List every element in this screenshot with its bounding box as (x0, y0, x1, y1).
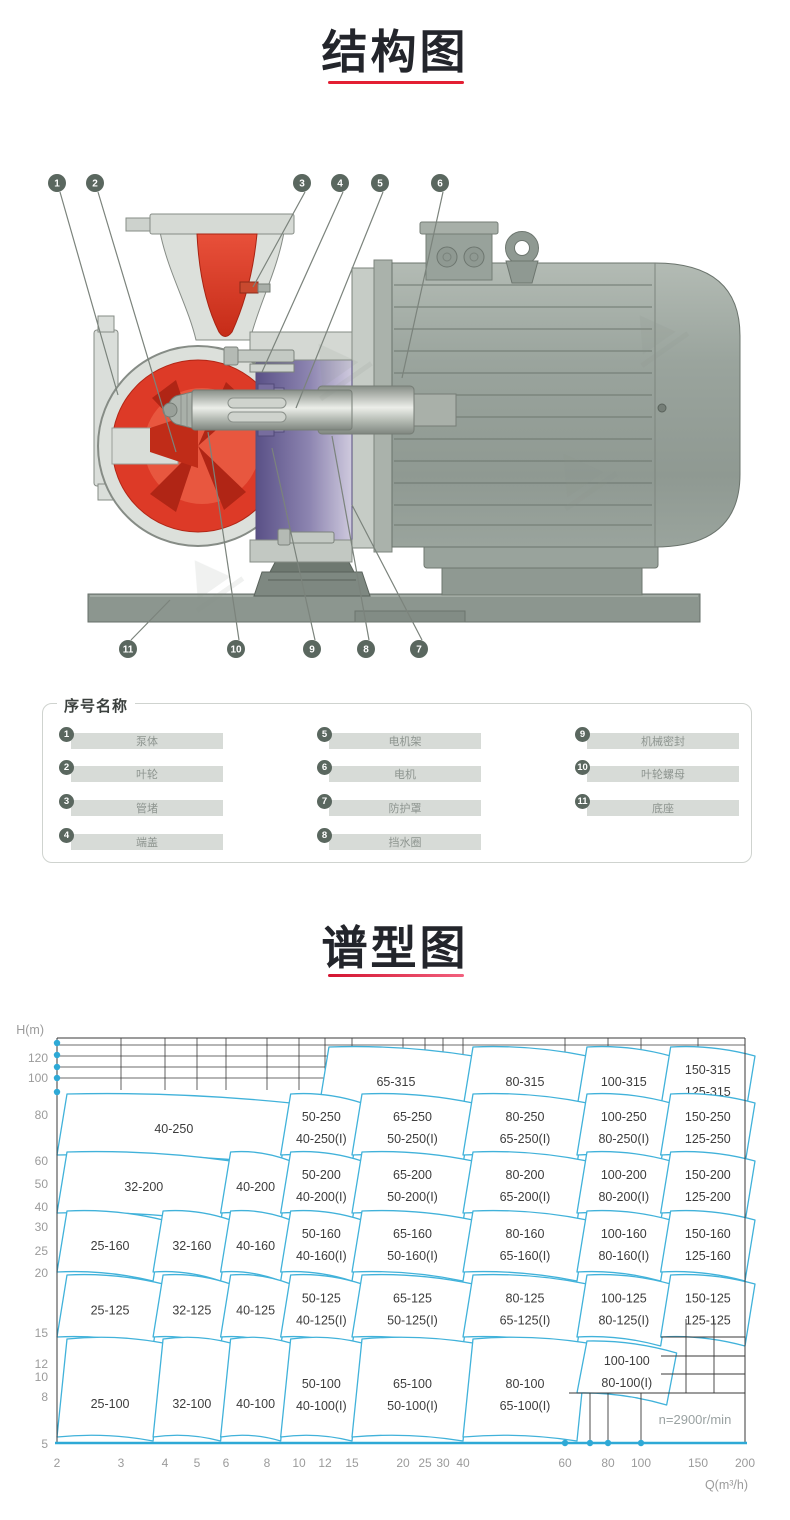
y-tick-label: 8 (41, 1390, 48, 1404)
chart-region-label: 65-125(I) (500, 1314, 551, 1328)
legend-item-number: 6 (317, 760, 332, 775)
callout-number: 10 (230, 645, 242, 656)
terminal-box (420, 222, 498, 280)
y-tick-label: 120 (28, 1051, 48, 1065)
chart-region-label: 65-160(I) (500, 1249, 551, 1263)
page: 结构图 谱型图 (0, 0, 790, 1520)
chart-region-label: 50-200 (302, 1168, 341, 1182)
chart-region-label: 32-100 (172, 1397, 211, 1411)
chart-region-label: 65-160 (393, 1227, 432, 1241)
chart-region-label: 80-125(I) (598, 1314, 649, 1328)
chart-region-label: 50-160(I) (387, 1249, 438, 1263)
x-axis-title: Q(m³/h) (705, 1478, 748, 1492)
chart-region-label: 100-315 (601, 1075, 647, 1089)
chart-region-label: 100-160 (601, 1227, 647, 1241)
chart-region-label: 125-250 (685, 1132, 731, 1146)
legend-item-number: 2 (59, 760, 74, 775)
legend-item-number: 1 (59, 727, 74, 742)
chart-region-label: 25-100 (91, 1397, 130, 1411)
chart-region-label: 40-125 (236, 1304, 275, 1318)
legend-item-label: 管堵 (71, 800, 223, 816)
x-tick-label: 60 (558, 1456, 572, 1470)
chart-region-label: 150-160 (685, 1227, 731, 1241)
callout-number: 11 (123, 645, 134, 656)
structure-section-title: 结构图 (0, 16, 790, 82)
chart-region-label: 40-125(I) (296, 1314, 347, 1328)
chart-region-label: 80-100(I) (601, 1376, 652, 1390)
chart-region (352, 1211, 473, 1281)
chart-region-label: 80-200(I) (598, 1190, 649, 1204)
chart-region-label: 50-100 (302, 1377, 341, 1391)
chart-region-label: 150-200 (685, 1168, 731, 1182)
chart-region-label: 25-160 (91, 1239, 130, 1253)
y-axis-title: H(m) (16, 1023, 44, 1037)
chart-region-label: 40-200(I) (296, 1190, 347, 1204)
callout-number: 2 (92, 179, 98, 190)
chart-region-label: 65-100(I) (500, 1399, 551, 1413)
x-tick-label: 150 (688, 1456, 708, 1470)
legend-item-number: 9 (575, 727, 590, 742)
callout-leader (60, 192, 118, 395)
chart-region-label: 150-250 (685, 1110, 731, 1124)
structure-diagram-svg: 1234561110987 (0, 140, 790, 670)
spectrum-chart-svg: 65-31580-315100-315150-315125-31540-2505… (0, 1000, 790, 1520)
x-tick-label: 4 (162, 1456, 169, 1470)
x-tick-label: 3 (118, 1456, 125, 1470)
x-tick-label: 10 (292, 1456, 306, 1470)
chart-annotation: n=2900r/min (659, 1412, 732, 1427)
chart-region (57, 1337, 163, 1441)
chart-region-label: 40-250(I) (296, 1132, 347, 1146)
chart-region-label: 50-100(I) (387, 1399, 438, 1413)
chart-region-label: 100-100 (604, 1354, 650, 1368)
legend-item-label: 端盖 (71, 834, 223, 850)
x-tick-label: 20 (396, 1456, 410, 1470)
chart-region (281, 1211, 362, 1281)
chart-region-label: 100-200 (601, 1168, 647, 1182)
x-tick-label: 2 (54, 1456, 61, 1470)
chart-region-label: 65-315 (376, 1075, 415, 1089)
legend-item-number: 3 (59, 794, 74, 809)
chart-regions: 65-31580-315100-315150-315125-31540-2505… (57, 1047, 755, 1441)
chart-region-label: 50-160 (302, 1227, 341, 1241)
chart-region-label: 25-125 (91, 1304, 130, 1318)
chart-region-label: 65-250(I) (500, 1132, 551, 1146)
legend-item-label: 机械密封 (587, 733, 739, 749)
x-tick-label: 15 (345, 1456, 359, 1470)
chart-region-label: 32-125 (172, 1304, 211, 1318)
legend-item-number: 5 (317, 727, 332, 742)
y-tick-label: 40 (35, 1200, 49, 1214)
chart-region-label: 65-100 (393, 1377, 432, 1391)
x-tick-label: 12 (318, 1456, 332, 1470)
legend-item-label: 叶轮螺母 (587, 766, 739, 782)
chart-region-label: 125-200 (685, 1190, 731, 1204)
chart-region (281, 1275, 362, 1346)
x-tick-label: 6 (223, 1456, 230, 1470)
x-tick-label: 80 (601, 1456, 615, 1470)
legend-item-number: 11 (575, 794, 590, 809)
chart-region-label: 40-100(I) (296, 1399, 347, 1413)
chart-region-label: 40-160(I) (296, 1249, 347, 1263)
motor-bolt (658, 404, 666, 412)
parts-legend-panel: 序号名称 1泵体2叶轮3管堵4端盖5电机架6电机7防护罩8挡水圈9机械密封10叶… (42, 703, 752, 863)
legend-item-label: 泵体 (71, 733, 223, 749)
callout-number: 9 (309, 645, 315, 656)
chart-region (463, 1211, 587, 1281)
legend-item-number: 7 (317, 794, 332, 809)
legend-item-label: 叶轮 (71, 766, 223, 782)
chart-region-label: 50-250(I) (387, 1132, 438, 1146)
y-tick-label: 100 (28, 1071, 48, 1085)
chart-region (221, 1337, 291, 1441)
chart-region-label: 100-250 (601, 1110, 647, 1124)
y-tick-label: 30 (35, 1220, 49, 1234)
chart-region-label: 50-200(I) (387, 1190, 438, 1204)
x-tick-label: 40 (456, 1456, 470, 1470)
legend-item-label: 防护罩 (329, 800, 481, 816)
chart-region-label: 80-250(I) (598, 1132, 649, 1146)
chart-region-label: 50-125(I) (387, 1314, 438, 1328)
chart-region-label: 65-125 (393, 1292, 432, 1306)
chart-region-label: 50-125 (302, 1292, 341, 1306)
chart-region-label: 80-160(I) (598, 1249, 649, 1263)
chart-region-label: 150-125 (685, 1292, 731, 1306)
chart-region (577, 1341, 677, 1405)
y-tick-label: 50 (35, 1177, 49, 1191)
chart-region-label: 40-200 (236, 1180, 275, 1194)
callout-number: 4 (337, 179, 343, 190)
chart-region-label: 80-100 (506, 1377, 545, 1391)
y-tick-label: 20 (35, 1266, 49, 1280)
x-tick-label: 25 (418, 1456, 432, 1470)
callout-number: 7 (416, 645, 422, 656)
chart-region-label: 32-160 (172, 1239, 211, 1253)
parts-legend-title: 序号名称 (57, 695, 135, 716)
legend-item-label: 电机 (329, 766, 481, 782)
chart-region (153, 1337, 231, 1441)
spectrum-title-rule (328, 974, 464, 977)
lifting-eye (506, 232, 539, 284)
chart-region-label: 65-250 (393, 1110, 432, 1124)
pump-shaft (163, 386, 456, 434)
callout-number: 5 (377, 179, 383, 190)
chart-region-label: 80-160 (506, 1227, 545, 1241)
x-tick-label: 200 (735, 1456, 755, 1470)
chart-region-label: 32-200 (124, 1180, 163, 1194)
x-tick-label: 8 (264, 1456, 271, 1470)
legend-item-label: 底座 (587, 800, 739, 816)
chart-region-label: 80-315 (506, 1075, 545, 1089)
chart-region-label: 125-125 (685, 1314, 731, 1328)
legend-item-number: 10 (575, 760, 590, 775)
chart-region (577, 1211, 671, 1281)
chart-region-label: 65-200 (393, 1168, 432, 1182)
chart-region-label: 150-315 (685, 1063, 731, 1077)
chart-region-label: 125-160 (685, 1249, 731, 1263)
y-tick-label: 60 (35, 1154, 49, 1168)
chart-region-label: 80-250 (506, 1110, 545, 1124)
chart-region-label: 50-250 (302, 1110, 341, 1124)
legend-item-number: 8 (317, 828, 332, 843)
callout-number: 6 (437, 179, 443, 190)
callout-number: 1 (54, 179, 60, 190)
y-tick-label: 80 (35, 1108, 49, 1122)
chart-region (463, 1275, 587, 1346)
legend-item-number: 4 (59, 828, 74, 843)
base-plate (88, 594, 700, 622)
chart-region (577, 1275, 671, 1346)
chart-region (661, 1275, 755, 1346)
chart-region-label: 65-200(I) (500, 1190, 551, 1204)
x-tick-label: 30 (436, 1456, 450, 1470)
legend-item-label: 电机架 (329, 733, 481, 749)
x-tick-label: 5 (194, 1456, 201, 1470)
y-tick-label: 15 (35, 1326, 49, 1340)
chart-region-label: 80-200 (506, 1168, 545, 1182)
y-tick-label: 12 (35, 1357, 49, 1371)
x-tick-label: 100 (631, 1456, 651, 1470)
callout-number: 8 (363, 645, 369, 656)
spectrum-section-title: 谱型图 (0, 912, 790, 978)
legend-item-label: 挡水圈 (329, 834, 481, 850)
chart-region (661, 1211, 755, 1281)
callout-number: 3 (299, 179, 305, 190)
y-tick-label: 10 (35, 1370, 49, 1384)
chart-region-label: 80-125 (506, 1292, 545, 1306)
structure-title-rule (328, 81, 464, 84)
chart-region (352, 1275, 473, 1346)
chart-region-label: 40-100 (236, 1397, 275, 1411)
chart-region-label: 40-160 (236, 1239, 275, 1253)
y-tick-label: 25 (35, 1244, 49, 1258)
chart-region-label: 100-125 (601, 1292, 647, 1306)
chart-region-label: 40-250 (154, 1122, 193, 1136)
y-tick-label: 5 (41, 1437, 48, 1451)
